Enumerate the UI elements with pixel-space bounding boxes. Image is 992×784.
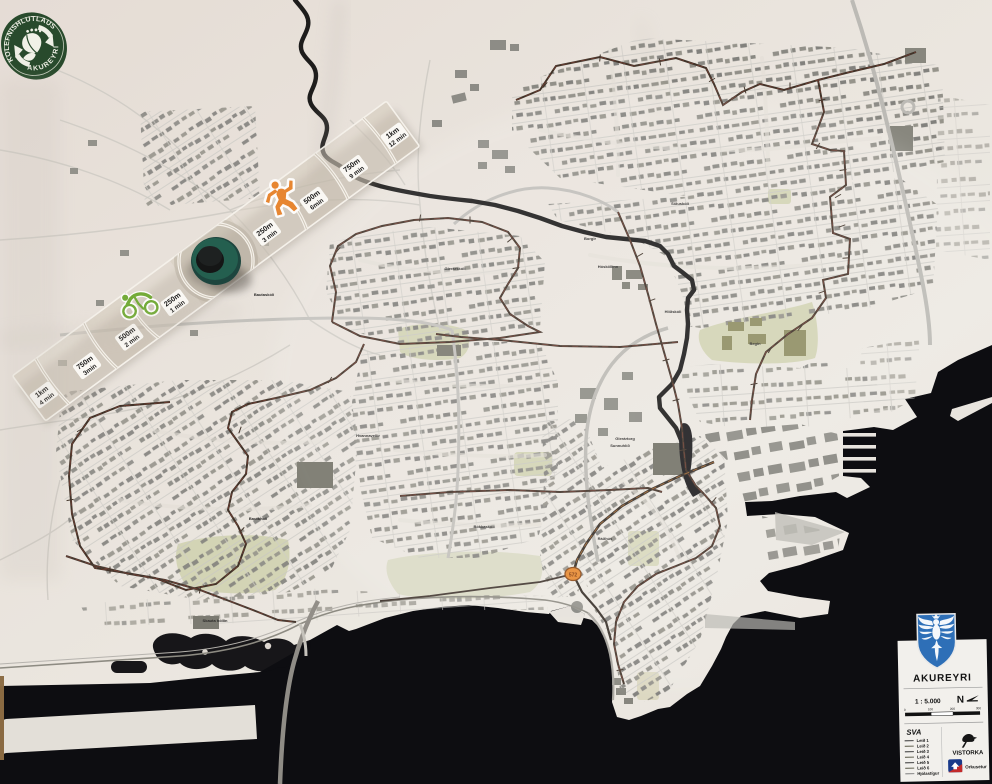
svg-text:Leið 6: Leið 6 [917, 765, 930, 770]
svg-text:AKUREYRI: AKUREYRI [913, 672, 972, 684]
svg-text:N: N [957, 695, 964, 706]
svg-text:SVA: SVA [906, 727, 921, 736]
svg-text:Orkusetur: Orkusetur [965, 764, 987, 769]
svg-text:VISTORKA: VISTORKA [952, 750, 984, 757]
svg-text:Leið 5: Leið 5 [917, 760, 930, 765]
svg-text:100: 100 [928, 707, 933, 711]
svg-text:Leið 3: Leið 3 [917, 749, 930, 754]
svg-text:Leið 1: Leið 1 [917, 738, 930, 743]
svg-text:Leið 2: Leið 2 [917, 743, 930, 748]
svg-text:1 : 5.000: 1 : 5.000 [915, 698, 941, 706]
svg-text:200: 200 [950, 707, 955, 711]
svg-text:300: 300 [976, 706, 981, 710]
svg-text:Leið 4: Leið 4 [917, 754, 930, 759]
svg-text:Hjólastígur: Hjólastígur [917, 771, 939, 776]
